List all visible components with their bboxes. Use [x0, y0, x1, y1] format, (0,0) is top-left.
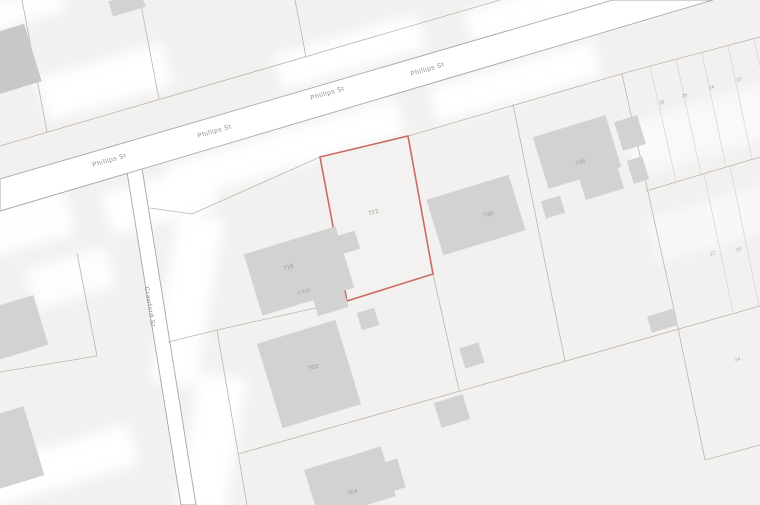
building	[647, 309, 678, 333]
building	[108, 0, 145, 17]
building	[459, 343, 484, 369]
lot-number: 13	[735, 76, 742, 83]
lot-number: 18	[658, 99, 665, 106]
building	[434, 394, 470, 428]
lot-number: 24	[708, 84, 715, 91]
parcel-map: Phillips St Phillips St Phillips St Phil…	[0, 0, 760, 505]
building	[357, 308, 379, 330]
building-730	[426, 175, 525, 256]
lot-number: 26	[681, 92, 688, 99]
lot-number: 17	[709, 250, 716, 257]
map-canvas[interactable]: Phillips St Phillips St Phillips St Phil…	[0, 0, 760, 505]
lot-number: 15	[735, 246, 742, 253]
building-702	[257, 320, 361, 428]
building	[541, 195, 565, 218]
building	[0, 24, 42, 97]
lot-number: 24	[734, 356, 741, 363]
